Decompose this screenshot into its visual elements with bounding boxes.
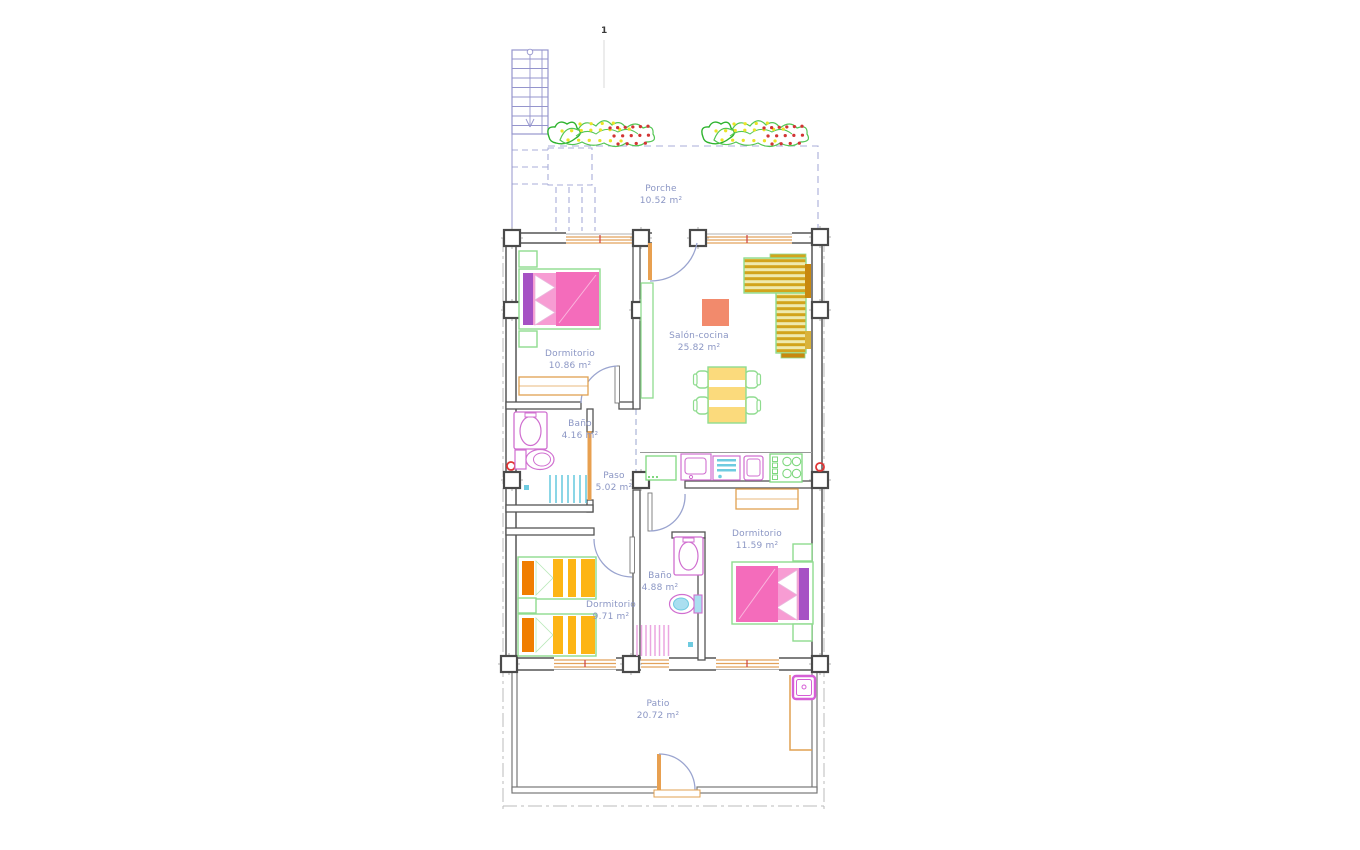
room-name: Dormitorio — [545, 349, 595, 361]
patio-door-leaf — [657, 754, 661, 790]
sink-cabinet-icon — [681, 454, 711, 480]
room-label-dormitorio-3: Dormitorio 9.71 m² — [586, 600, 636, 623]
hedge-icon — [548, 121, 810, 147]
room-area: 4.16 m² — [562, 431, 599, 443]
twin-beds-icon — [518, 557, 596, 656]
boundary-lines — [503, 40, 824, 810]
patio-elements — [790, 675, 815, 750]
fridge-icon — [646, 456, 676, 480]
floor-plan-canvas: 1 Porche 10.52 m² Dormitorio 10.86 m² Sa… — [0, 0, 1360, 850]
room-label-dormitorio-1: Dormitorio 10.86 m² — [545, 349, 595, 372]
kitchen-counter — [640, 453, 812, 483]
room-name: Dormitorio — [732, 529, 782, 541]
shelf-icon — [641, 283, 653, 398]
wardrobe-icon — [519, 377, 588, 395]
shower-icon — [637, 625, 669, 656]
room-name: Baño — [562, 419, 599, 431]
shower-icon — [550, 475, 586, 503]
rug-icon — [702, 299, 729, 326]
room-name: Paso — [596, 471, 633, 483]
room-name: Baño — [642, 571, 679, 583]
dishwasher-icon — [713, 456, 740, 480]
bathroom2-fixtures — [637, 537, 703, 656]
room-label-salon-cocina: Salón-cocina 25.82 m² — [669, 331, 729, 354]
room-area: 5.02 m² — [596, 483, 633, 495]
washbasin-icon — [520, 417, 541, 446]
room-area: 20.72 m² — [637, 711, 680, 723]
room-area: 9.71 m² — [586, 612, 636, 624]
room-name: Porche — [640, 184, 683, 196]
entry-door-leaf — [648, 243, 652, 280]
laundry-sink-icon — [793, 676, 815, 699]
washbasin-icon — [679, 542, 698, 570]
room-area: 10.86 m² — [545, 361, 595, 373]
room-area: 4.88 m² — [642, 583, 679, 595]
wardrobe-icon — [736, 489, 798, 509]
section-marker: 1 — [601, 26, 607, 36]
room-label-dormitorio-2: Dormitorio 11.59 m² — [732, 529, 782, 552]
room-label-bano-1: Baño 4.16 m² — [562, 419, 599, 442]
room-area: 25.82 m² — [669, 343, 729, 355]
room-label-patio: Patio 20.72 m² — [637, 699, 680, 722]
room-label-porche: Porche 10.52 m² — [640, 184, 683, 207]
double-bed-icon — [732, 544, 813, 641]
floor-plan-svg — [0, 0, 1360, 850]
room-area: 10.52 m² — [640, 196, 683, 208]
stairs-icon — [512, 49, 548, 231]
room-label-bano-2: Baño 4.88 m² — [642, 571, 679, 594]
double-bed-icon — [519, 251, 600, 347]
room-name: Salón-cocina — [669, 331, 729, 343]
room-area: 11.59 m² — [732, 541, 782, 553]
basin-icon — [744, 456, 763, 480]
dining-table-icon — [694, 367, 761, 423]
room-label-paso: Paso 5.02 m² — [596, 471, 633, 494]
sofa-icon — [744, 254, 811, 358]
cooktop-icon — [770, 454, 802, 482]
room-name: Dormitorio — [586, 600, 636, 612]
room-name: Patio — [637, 699, 680, 711]
toilet-icon — [515, 450, 526, 469]
